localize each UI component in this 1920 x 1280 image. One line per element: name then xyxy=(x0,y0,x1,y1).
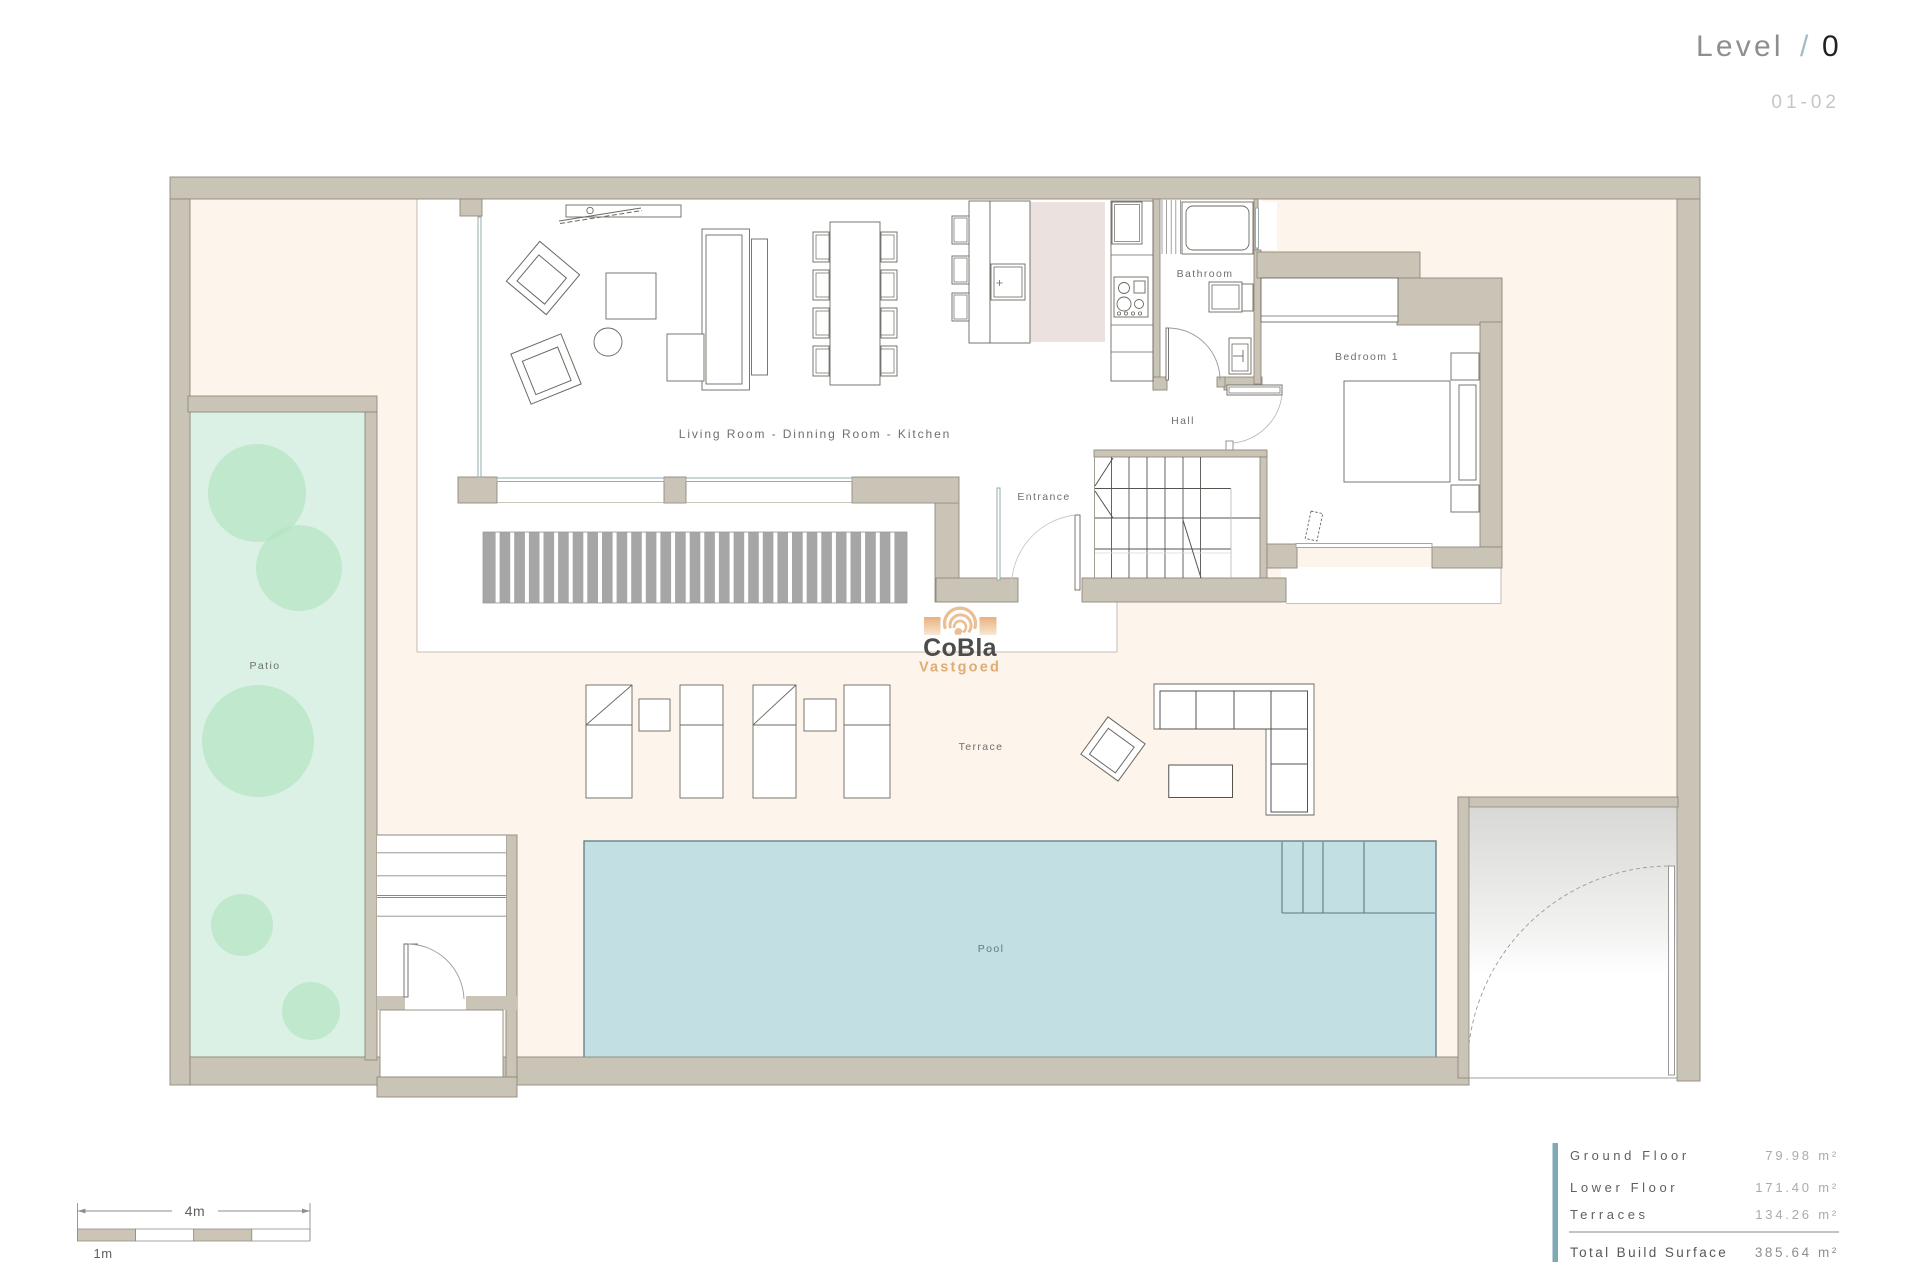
svg-text:1m: 1m xyxy=(93,1246,112,1261)
svg-text:79.98 m²: 79.98 m² xyxy=(1765,1148,1839,1163)
svg-text:385.64 m²: 385.64 m² xyxy=(1755,1245,1839,1260)
svg-text:134.26 m²: 134.26 m² xyxy=(1755,1207,1839,1222)
svg-text:Vastgoed: Vastgoed xyxy=(919,660,1001,676)
svg-text:/: / xyxy=(1800,30,1809,63)
svg-text:01-02: 01-02 xyxy=(1771,92,1840,113)
svg-text:Bathroom: Bathroom xyxy=(1177,268,1234,280)
svg-text:Patio: Patio xyxy=(250,660,281,672)
svg-text:Lower Floor: Lower Floor xyxy=(1570,1180,1678,1195)
svg-text:CoBla: CoBla xyxy=(923,634,998,662)
svg-text:Bedroom 1: Bedroom 1 xyxy=(1335,351,1399,363)
svg-text:Hall: Hall xyxy=(1171,415,1195,427)
svg-text:Pool: Pool xyxy=(978,943,1005,955)
svg-text:4m: 4m xyxy=(185,1203,205,1219)
svg-text:Living Room - Dinning Room - K: Living Room - Dinning Room - Kitchen xyxy=(679,427,952,441)
svg-text:Terraces: Terraces xyxy=(1570,1207,1649,1222)
svg-text:Level: Level xyxy=(1696,30,1784,63)
svg-text:0: 0 xyxy=(1822,30,1839,63)
svg-text:171.40 m²: 171.40 m² xyxy=(1755,1180,1839,1195)
svg-text:Total Build Surface: Total Build Surface xyxy=(1570,1245,1728,1260)
svg-text:Ground Floor: Ground Floor xyxy=(1570,1148,1690,1163)
svg-text:Terrace: Terrace xyxy=(959,741,1004,753)
svg-text:Entrance: Entrance xyxy=(1017,491,1070,503)
